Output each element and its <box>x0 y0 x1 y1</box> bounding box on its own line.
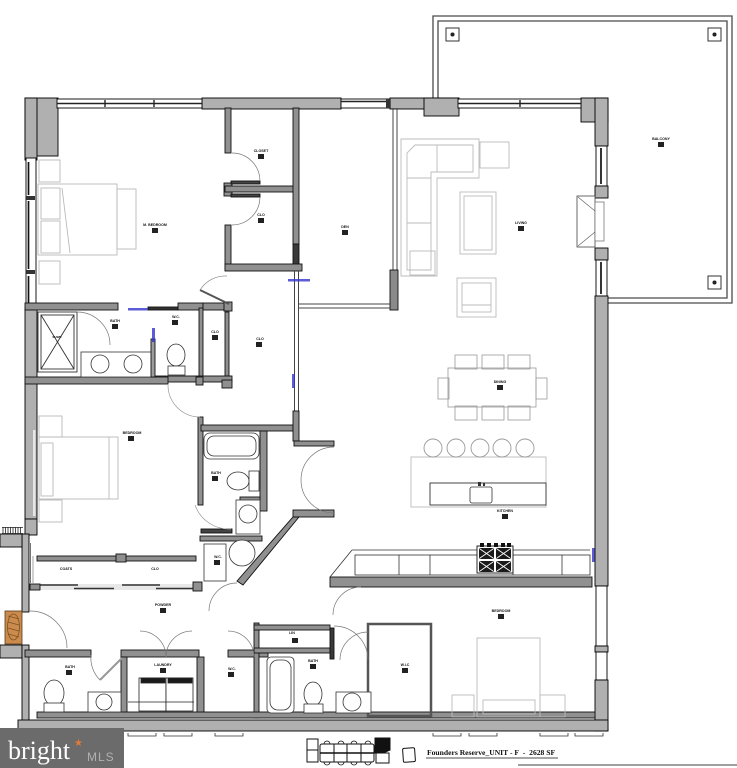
svg-text:DINING: DINING <box>494 380 507 384</box>
svg-text:BATH: BATH <box>65 665 75 669</box>
svg-text:W.I.C: W.I.C <box>401 663 410 667</box>
svg-text:★: ★ <box>74 738 83 749</box>
svg-text:Founders Reserve_UNIT - F -: Founders Reserve_UNIT - F - 2628 SF <box>427 748 555 757</box>
svg-text:POWDER: POWDER <box>155 603 172 607</box>
svg-text:W.C.: W.C. <box>172 315 180 319</box>
svg-text:CLOSET: CLOSET <box>254 149 269 153</box>
svg-text:W.C.: W.C. <box>228 667 236 671</box>
svg-text:COATS: COATS <box>60 567 73 571</box>
svg-text:CLO: CLO <box>256 337 264 341</box>
svg-text:CLO: CLO <box>151 567 159 571</box>
svg-text:bright: bright <box>8 736 71 765</box>
svg-text:MLS: MLS <box>87 750 115 764</box>
svg-text:SHWR: SHWR <box>52 335 62 339</box>
svg-text:CLO: CLO <box>257 213 265 217</box>
svg-text:BATH: BATH <box>110 319 120 323</box>
svg-text:LAUNDRY: LAUNDRY <box>154 663 172 667</box>
svg-text:BATH: BATH <box>211 471 221 475</box>
svg-text:LIN: LIN <box>289 631 295 635</box>
svg-text:LIVING: LIVING <box>515 221 527 225</box>
svg-text:W.C.: W.C. <box>214 555 222 559</box>
svg-text:BATH: BATH <box>308 659 318 663</box>
svg-text:BALCONY: BALCONY <box>652 137 670 141</box>
svg-text:BEDROOM: BEDROOM <box>123 431 142 435</box>
svg-text:BEDROOM: BEDROOM <box>492 609 511 613</box>
svg-text:DEN: DEN <box>341 225 349 229</box>
svg-text:CLO: CLO <box>211 330 219 334</box>
svg-text:M. BEDROOM: M. BEDROOM <box>143 223 167 227</box>
svg-text:KITCHEN: KITCHEN <box>497 509 513 513</box>
